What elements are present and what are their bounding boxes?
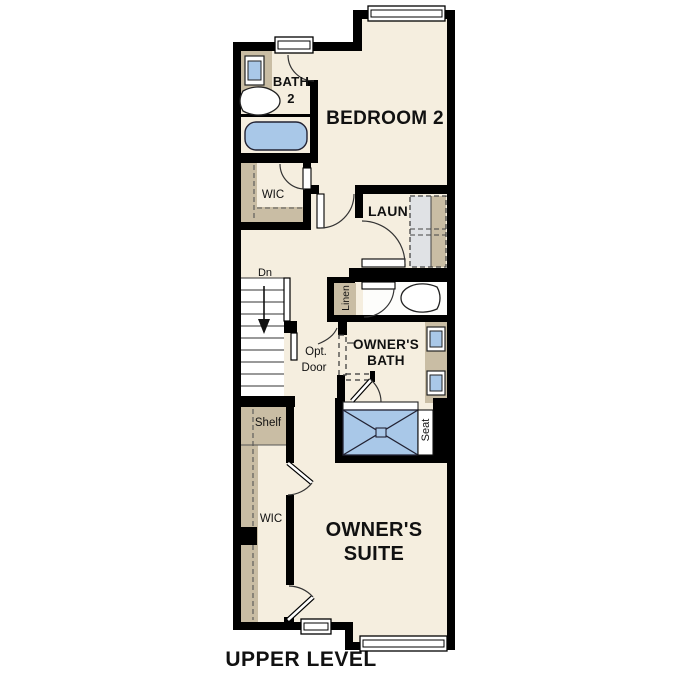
laundry-counter-strip: [431, 196, 446, 267]
wall-shower-left: [335, 398, 343, 463]
opt-door-label-line2: Door: [302, 362, 327, 374]
bath2-sink-basin: [248, 61, 261, 80]
suite-window-large-pane: [363, 640, 444, 647]
bath2-label-line2: 2: [287, 91, 295, 106]
toilet-room-door-leaf: [362, 282, 395, 289]
floor-plan-page: BATH 2 BEDROOM 2 WIC LAUN Dn Linen Opt. …: [0, 0, 687, 687]
bedroom2-window-pane: [371, 10, 442, 17]
wall-right: [447, 10, 455, 650]
bedroom2-window: [368, 6, 445, 21]
suite-window-small: [301, 619, 331, 634]
owners-toilet: [401, 284, 440, 312]
owners-sink2-basin: [430, 375, 442, 391]
wall-wic-upper-bottom: [233, 222, 311, 230]
laundry-door-leaf: [362, 259, 405, 267]
wic-upper-shelf: [257, 207, 303, 222]
wall-toilet-room-bottom: [327, 315, 455, 322]
wall-wic-lower-right-a: [286, 407, 294, 463]
wall-stairs-bottom: [233, 396, 295, 407]
stairs-floor: [241, 278, 284, 396]
wall-opt-door-jamb-top: [338, 322, 347, 335]
wall-stairs-rail-block: [284, 321, 297, 333]
floor-plan-svg: BATH 2 BEDROOM 2 WIC LAUN Dn Linen Opt. …: [0, 0, 687, 687]
bath2-toilet: [240, 87, 280, 115]
wic-lower-label: WIC: [260, 513, 282, 525]
wall-shower-bottom: [335, 455, 447, 463]
wall-bedroom-laundry: [355, 185, 447, 194]
opt-door-label-line1: Opt.: [305, 346, 327, 358]
shelf-label: Shelf: [255, 417, 282, 429]
wall-linen-top: [327, 277, 355, 283]
wall-bath2-divider: [310, 80, 318, 163]
bath2-window: [275, 37, 313, 53]
washer-dryer-body: [410, 196, 431, 267]
bath2-window-pane: [278, 41, 310, 49]
laundry-label: LAUN: [368, 203, 408, 219]
stairs-railing-lower: [291, 333, 297, 360]
plan-title: UPPER LEVEL: [225, 648, 376, 671]
wall-laundry-left: [355, 185, 363, 218]
shower-drain: [376, 428, 386, 437]
owners-suite-label-line1: OWNER'S: [326, 519, 423, 541]
owners-bath-label-line2: BATH: [367, 353, 405, 368]
wall-wic-lower-column: [233, 527, 257, 545]
wall-shower-right: [433, 398, 447, 458]
wall-wic-lower-right-b: [286, 495, 294, 585]
bath2-label-line1: BATH: [273, 74, 309, 89]
owners-suite-label-line2: SUITE: [344, 543, 404, 565]
wall-laundry-bottom: [349, 268, 455, 282]
bedroom2-door-leaf: [317, 194, 324, 228]
suite-window-small-pane: [304, 623, 328, 630]
wic-upper-label: WIC: [262, 189, 284, 201]
shower-glass: [343, 402, 418, 410]
seat-label: Seat: [420, 419, 432, 442]
stairs-dn-label: Dn: [258, 267, 272, 279]
bathtub: [245, 122, 307, 150]
linen-label: Linen: [340, 285, 352, 311]
stairs-railing-upper: [284, 278, 290, 321]
wic-upper-rod-strip: [241, 163, 257, 222]
bedroom2-label: BEDROOM 2: [326, 108, 444, 129]
owners-bath-label-line1: OWNER'S: [353, 337, 419, 352]
wic-upper-door-leaf: [303, 168, 311, 189]
owners-sink1-basin: [430, 331, 442, 347]
wall-tub-bottom: [233, 153, 318, 163]
